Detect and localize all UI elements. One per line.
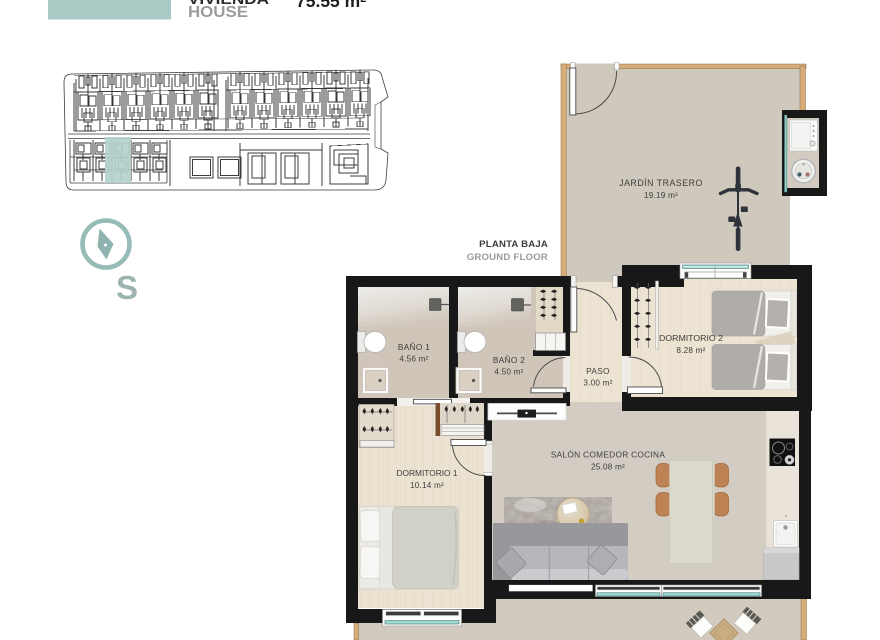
svg-text:SALÓN COMEDOR COCINA: SALÓN COMEDOR COCINA — [551, 450, 665, 460]
svg-text:3.00 m²: 3.00 m² — [583, 379, 612, 388]
svg-text:10.14 m²: 10.14 m² — [410, 481, 444, 490]
svg-text:BAÑO 2: BAÑO 2 — [493, 355, 525, 365]
svg-text:HOUSE: HOUSE — [188, 4, 248, 21]
svg-text:4.50 m²: 4.50 m² — [494, 368, 523, 377]
svg-text:4.56 m²: 4.56 m² — [399, 355, 428, 364]
svg-text:JARDÍN TRASERO: JARDÍN TRASERO — [619, 178, 703, 188]
svg-text:S: S — [116, 269, 138, 306]
svg-text:DORMITORIO 1: DORMITORIO 1 — [397, 468, 458, 478]
svg-text:8.28 m²: 8.28 m² — [676, 346, 705, 355]
svg-text:25.08 m²: 25.08 m² — [591, 463, 625, 472]
svg-text:PASO: PASO — [586, 366, 610, 376]
svg-text:BAÑO 1: BAÑO 1 — [398, 342, 430, 352]
svg-text:DORMITORIO 2: DORMITORIO 2 — [659, 333, 723, 343]
svg-text:GROUND FLOOR: GROUND FLOOR — [467, 252, 548, 263]
svg-text:75.55 m2: 75.55 m2 — [296, 0, 366, 11]
svg-text:PLANTA BAJA: PLANTA BAJA — [479, 239, 548, 250]
svg-text:19.19 m²: 19.19 m² — [644, 191, 678, 200]
